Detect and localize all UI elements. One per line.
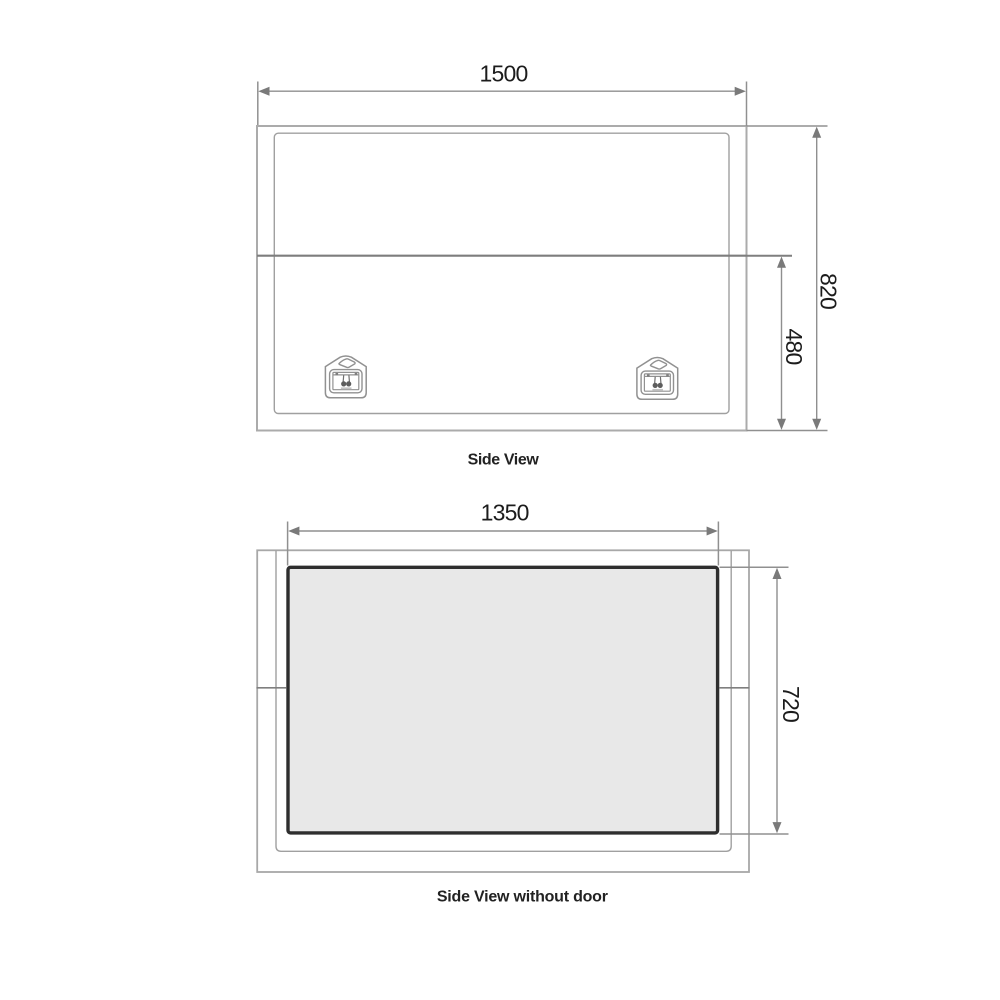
svg-text:1500: 1500 bbox=[480, 61, 528, 87]
svg-text:480: 480 bbox=[781, 329, 807, 365]
svg-text:Side View without door: Side View without door bbox=[437, 889, 608, 906]
svg-text:820: 820 bbox=[816, 273, 842, 309]
svg-text:Side View: Side View bbox=[468, 452, 540, 469]
svg-text:720: 720 bbox=[778, 686, 804, 722]
svg-text:1350: 1350 bbox=[481, 500, 529, 526]
